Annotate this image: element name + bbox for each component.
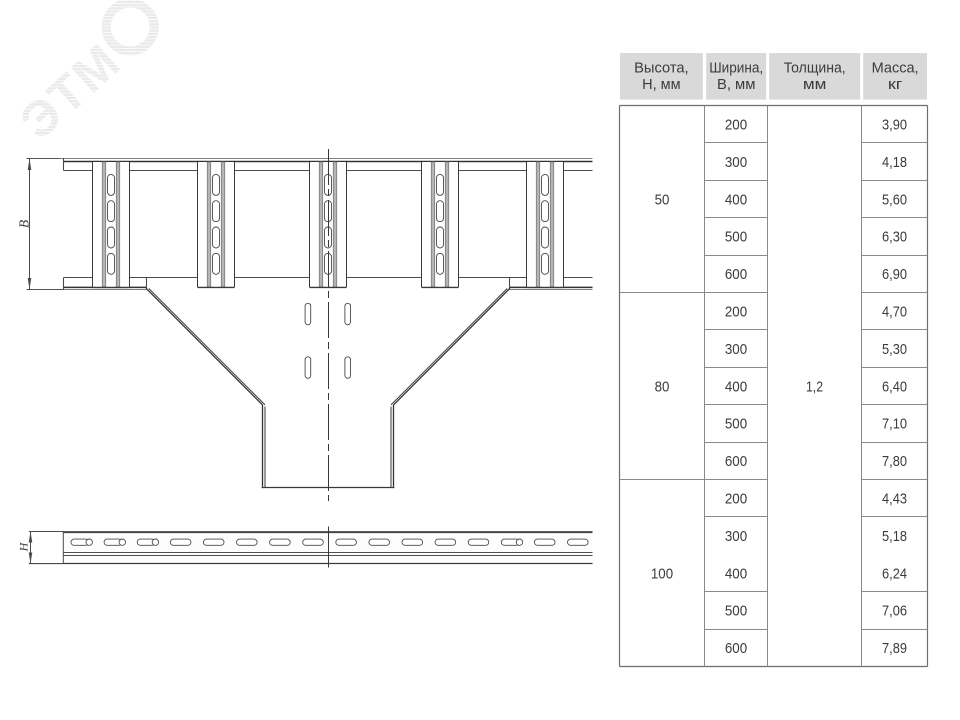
svg-text:500: 500 <box>725 603 747 620</box>
svg-text:100: 100 <box>651 565 673 582</box>
svg-text:1,2: 1,2 <box>806 378 823 395</box>
svg-text:кг: кг <box>888 76 903 93</box>
svg-text:7,80: 7,80 <box>882 453 907 470</box>
svg-text:400: 400 <box>725 378 747 395</box>
svg-text:4,43: 4,43 <box>882 491 907 508</box>
svg-text:6,24: 6,24 <box>882 565 907 582</box>
svg-text:Толщина,: Толщина, <box>784 60 846 77</box>
svg-text:50: 50 <box>655 191 670 208</box>
svg-text:мм: мм <box>803 76 827 93</box>
svg-text:400: 400 <box>725 565 747 582</box>
svg-text:200: 200 <box>725 117 747 134</box>
svg-text:500: 500 <box>725 416 747 433</box>
svg-text:Н: Н <box>17 541 31 552</box>
svg-text:7,06: 7,06 <box>882 603 907 620</box>
svg-text:7,10: 7,10 <box>882 416 907 433</box>
svg-text:6,90: 6,90 <box>882 266 907 283</box>
svg-text:200: 200 <box>725 491 747 508</box>
svg-text:600: 600 <box>725 640 747 657</box>
svg-text:5,30: 5,30 <box>882 341 907 358</box>
svg-text:Н, мм: Н, мм <box>642 76 681 93</box>
svg-text:Масса,: Масса, <box>872 60 919 77</box>
svg-text:200: 200 <box>725 304 747 321</box>
svg-text:7,89: 7,89 <box>882 640 907 657</box>
svg-text:6,40: 6,40 <box>882 378 907 395</box>
svg-text:300: 300 <box>725 528 747 545</box>
svg-text:600: 600 <box>725 266 747 283</box>
svg-text:80: 80 <box>655 378 670 395</box>
svg-text:Ширина,: Ширина, <box>709 60 763 77</box>
svg-text:4,18: 4,18 <box>882 154 907 171</box>
svg-text:400: 400 <box>725 191 747 208</box>
svg-text:6,30: 6,30 <box>882 229 907 246</box>
svg-text:5,60: 5,60 <box>882 191 907 208</box>
svg-text:5,18: 5,18 <box>882 528 907 545</box>
svg-text:300: 300 <box>725 341 747 358</box>
svg-text:600: 600 <box>725 453 747 470</box>
svg-text:В: В <box>17 220 32 228</box>
svg-text:3,90: 3,90 <box>882 117 907 134</box>
svg-text:4,70: 4,70 <box>882 304 907 321</box>
svg-text:В, мм: В, мм <box>717 76 756 93</box>
svg-text:500: 500 <box>725 229 747 246</box>
svg-text:Высота,: Высота, <box>634 60 689 77</box>
svg-text:300: 300 <box>725 154 747 171</box>
